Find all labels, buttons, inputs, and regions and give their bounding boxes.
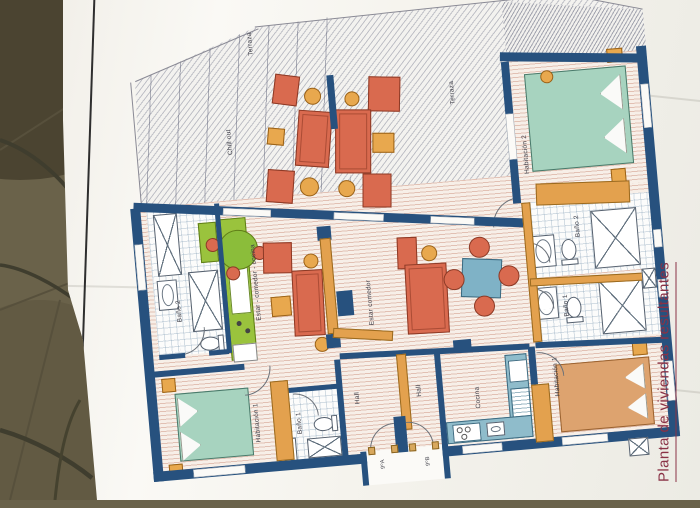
side-table xyxy=(267,127,285,145)
tv-cabinet xyxy=(336,290,354,316)
armchair xyxy=(266,169,295,204)
shower-tray xyxy=(188,270,223,332)
label-hall-b: Hall xyxy=(415,384,423,397)
shower-tray xyxy=(598,277,647,335)
sofa xyxy=(404,262,450,334)
sheet-title: Planta de viviendas resultantes xyxy=(656,262,677,482)
dining-table xyxy=(461,258,502,298)
shaft xyxy=(628,437,649,457)
oven xyxy=(510,387,532,419)
threshold xyxy=(432,441,440,450)
kitchen-appliance xyxy=(508,359,529,383)
side-table xyxy=(270,295,292,317)
nightstand xyxy=(161,378,176,393)
armchair xyxy=(363,174,392,208)
shower-tray xyxy=(590,207,641,269)
armchair xyxy=(272,74,300,107)
side-table xyxy=(372,133,394,153)
wall-bedroom2-top xyxy=(500,52,646,62)
window xyxy=(653,229,663,248)
wall-pier xyxy=(453,339,472,352)
sofa xyxy=(295,110,333,168)
sofa xyxy=(291,269,325,337)
threshold xyxy=(409,443,417,452)
armchair xyxy=(368,76,401,112)
toilet-tank xyxy=(331,415,338,431)
photo-of-floor-plan: Terraza Terraza Chill out Estar - comedo… xyxy=(0,0,700,500)
armchair xyxy=(263,242,293,274)
floor-plan: Terraza Terraza Chill out Estar - comedo… xyxy=(94,0,699,504)
threshold xyxy=(391,445,399,454)
new-wall-bedroom2 xyxy=(536,180,631,205)
label-hall-a: Hall xyxy=(354,392,362,405)
label-door-9B: 9ºB xyxy=(425,456,432,466)
threshold xyxy=(368,447,376,456)
kitchen-appliance xyxy=(232,343,257,363)
kitchen-sink xyxy=(486,421,505,437)
sofa xyxy=(335,109,371,173)
label-door-9A: 9ºA xyxy=(380,459,387,469)
